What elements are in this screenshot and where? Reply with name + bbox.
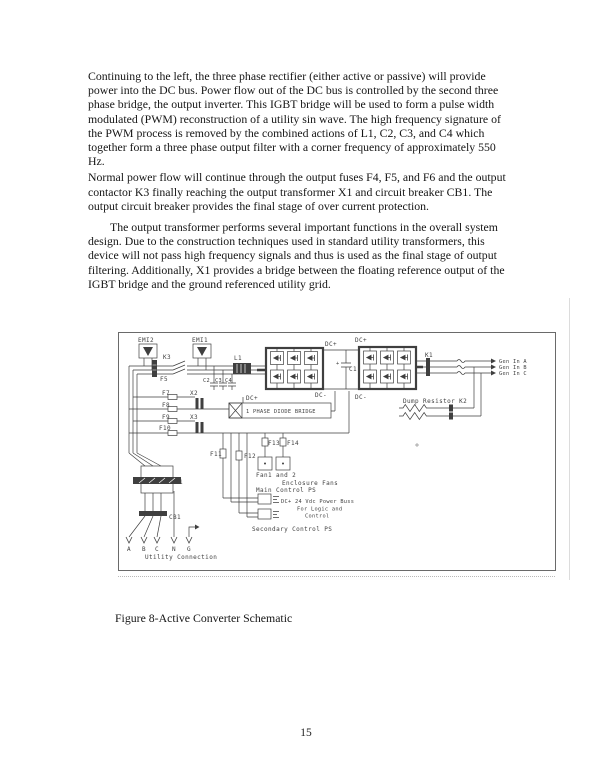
figure-caption: Figure 8-Active Converter Schematic bbox=[115, 611, 292, 626]
text-line: device will not pass high frequency sign… bbox=[88, 248, 558, 262]
dump-resistor-zigzag bbox=[399, 405, 481, 420]
l1-inductor bbox=[233, 363, 251, 374]
k2-contact bbox=[449, 405, 453, 412]
label-c1: C1 bbox=[349, 366, 357, 373]
label-l1: L1 bbox=[234, 355, 242, 362]
text-line: output circuit breaker provides the fina… bbox=[88, 199, 558, 213]
fuse-f12 bbox=[236, 451, 242, 460]
body-text: Continuing to the left, the three phase … bbox=[88, 69, 558, 291]
label-x1: X1 bbox=[175, 479, 183, 486]
text-line: IGBT bridge and the ground referenced ut… bbox=[88, 277, 558, 291]
label-power-buss-2: For Logic and bbox=[297, 507, 342, 513]
schematic-canvas: EMI2 EMI1 K3 F5 L1 C2 C3 C4 DC+ DC+ DC- … bbox=[119, 333, 555, 570]
k1-line-breaks bbox=[457, 360, 465, 375]
label-emi1: EMI1 bbox=[192, 337, 208, 344]
label-diode-bridge: 1 PHASE DIODE BRIDGE bbox=[246, 409, 316, 415]
label-dc-plus-2: DC+ bbox=[355, 337, 367, 344]
label-c4: C4 bbox=[225, 378, 232, 384]
label-enclosure-fans: Enclosure Fans bbox=[282, 480, 338, 487]
label-terminal-a: A bbox=[127, 546, 131, 553]
text-line: modulated (PWM) reconstruction of a util… bbox=[88, 112, 558, 126]
text-line: The output transformer performs several … bbox=[88, 220, 558, 234]
cb1-breaker-bar bbox=[139, 511, 167, 516]
text-line: design. Due to the construction techniqu… bbox=[88, 234, 558, 248]
label-power-buss-3: Control bbox=[305, 514, 329, 520]
label-f5: F5 bbox=[160, 376, 168, 383]
label-dc-minus-1: DC- bbox=[315, 392, 327, 399]
text-line: phase bridge, the output inverter. This … bbox=[88, 97, 558, 111]
label-secondary-control-ps: Secondary Control PS bbox=[252, 526, 332, 533]
label-terminal-b: B bbox=[142, 546, 146, 553]
label-dump-resistor-k2: Dump Resistor K2 bbox=[403, 398, 467, 405]
label-dc-minus-2: DC- bbox=[355, 394, 367, 401]
label-dc-plus-1: DC+ bbox=[325, 341, 337, 348]
k3-fuse-block bbox=[152, 360, 157, 377]
registration-mark bbox=[415, 443, 419, 447]
scan-artifact-vertical bbox=[569, 298, 570, 580]
paragraph-3: The output transformer performs several … bbox=[88, 220, 558, 291]
label-dc-plus-aux: DC+ bbox=[246, 395, 258, 402]
secondary-control-ps-box bbox=[258, 509, 271, 519]
label-terminal-g: G bbox=[187, 546, 191, 553]
label-utility-connection: Utility Connection bbox=[145, 554, 217, 561]
label-c2: C2 bbox=[203, 378, 210, 384]
label-x3: X3 bbox=[190, 414, 198, 421]
x3-winding bbox=[196, 422, 199, 433]
main-control-ps-box bbox=[258, 494, 271, 504]
text-line: power into the DC bus. Power flow out of… bbox=[88, 83, 558, 97]
ground-arrow bbox=[195, 525, 200, 530]
page-number: 15 bbox=[0, 727, 612, 739]
label-f12: F12 bbox=[244, 453, 256, 460]
x1-winding-band bbox=[133, 477, 181, 484]
label-cb1: CB1 bbox=[169, 514, 181, 521]
label-gen-in-c: Gen In C bbox=[499, 371, 527, 377]
label-f9: F9 bbox=[162, 414, 170, 421]
text-line: the PWM process is removed by the combin… bbox=[88, 126, 558, 140]
label-f11: F11 bbox=[210, 451, 222, 458]
label-fans: Fan1 and 2 bbox=[256, 472, 296, 479]
label-k3: K3 bbox=[163, 354, 171, 361]
label-k1: K1 bbox=[425, 352, 433, 359]
label-f10: F10 bbox=[159, 425, 171, 432]
fuse-f14 bbox=[280, 438, 286, 446]
paragraph-2: Normal power flow will continue through … bbox=[88, 170, 558, 213]
label-c3: C3 bbox=[215, 378, 222, 384]
text-line: Normal power flow will continue through … bbox=[88, 170, 558, 184]
label-f14: F14 bbox=[287, 440, 299, 447]
label-f13: F13 bbox=[268, 440, 280, 447]
label-power-buss: DC+ 24 Vdc Power Buss bbox=[281, 499, 354, 505]
label-f7: F7 bbox=[162, 390, 170, 397]
label-terminal-n: N bbox=[172, 546, 176, 553]
text-line: together form a three phase output filte… bbox=[88, 140, 558, 154]
label-c1-plus: + bbox=[336, 361, 340, 367]
label-terminal-c: C bbox=[155, 546, 159, 553]
text-line: Continuing to the left, the three phase … bbox=[88, 69, 558, 83]
schematic-labels: EMI2 EMI1 K3 F5 L1 C2 C3 C4 DC+ DC+ DC- … bbox=[127, 337, 527, 561]
paragraph-1: Continuing to the left, the three phase … bbox=[88, 69, 558, 168]
text-line: Hz. bbox=[88, 154, 558, 168]
scan-artifact-horizontal bbox=[118, 576, 555, 577]
label-x2: X2 bbox=[190, 390, 198, 397]
text-line: contactor K3 finally reaching the output… bbox=[88, 185, 558, 199]
figure-schematic: EMI2 EMI1 K3 F5 L1 C2 C3 C4 DC+ DC+ DC- … bbox=[118, 332, 556, 571]
label-emi2: EMI2 bbox=[138, 337, 154, 344]
label-f8: F8 bbox=[162, 402, 170, 409]
gen-terminal-arrow bbox=[491, 359, 496, 364]
text-line: filtering. Additionally, X1 provides a b… bbox=[88, 263, 558, 277]
x2-winding bbox=[196, 398, 199, 409]
label-main-control-ps: Main Control PS bbox=[256, 487, 316, 494]
